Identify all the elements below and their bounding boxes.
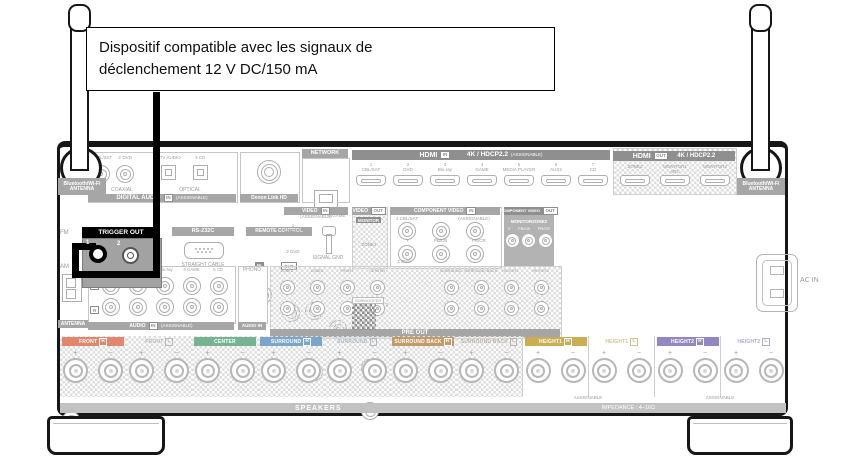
minus-sign: − [561, 350, 586, 358]
audio-jack-r [183, 298, 201, 316]
post-plus: + [592, 350, 617, 383]
speaker-channel-chip: L [762, 338, 769, 346]
coaxial-jack [116, 165, 134, 183]
speaker-name: FRONT [145, 339, 163, 345]
speaker-channel-chip: L [370, 338, 377, 346]
pre-out-jack [280, 280, 295, 295]
plus-sign: + [592, 350, 617, 358]
hdmi-port-icon [467, 175, 497, 186]
post-plus: + [195, 350, 220, 383]
subwoofer-num2: 2 [383, 303, 391, 308]
speaker-label: CENTER [194, 337, 256, 346]
binding-post [724, 358, 749, 383]
speaker-posts: + − [126, 350, 192, 397]
pre-out-label: ZONE3 [311, 268, 324, 274]
trigger-out-jack1 [89, 245, 107, 263]
component-out-channel-label: Y [508, 226, 511, 231]
post-minus: − [362, 350, 387, 383]
pre-out-label: HEIGHT2 [533, 268, 549, 274]
hdmi-port-icon [393, 175, 423, 186]
speaker-posts: + − [60, 350, 126, 397]
fm-label: FM [60, 230, 72, 237]
hdmi-out-spec: 4K / HDCP2.2 [677, 153, 715, 159]
hdmi-in-port: 2DVD [390, 162, 426, 186]
hdmi-in-port: 1CBL/SAT [353, 162, 389, 186]
speaker-label: HEIGHT1 L [591, 337, 653, 346]
hdmi-in-ports: 1CBL/SAT 2DVD 3Blu-ray 4GAME [353, 162, 611, 186]
component-jack [432, 245, 450, 263]
denon-link-bar: Denon Link HD [240, 194, 298, 202]
hdmi-port-icon [541, 175, 571, 186]
pre-out-jack [504, 301, 519, 316]
plus-sign: + [526, 350, 551, 358]
digital-audio-note: (ASSIGNABLE) [176, 196, 208, 201]
right-foot [687, 416, 793, 455]
plus-sign: + [63, 350, 88, 358]
binding-post [327, 358, 352, 383]
hdmi-port-label: 1CBL/SAT [362, 162, 380, 175]
speaker-posts: + − [655, 350, 720, 397]
pre-out-jack [504, 280, 519, 295]
speaker-posts: + − [192, 350, 258, 397]
post-minus: − [561, 350, 586, 383]
speaker-name: SURROUND [271, 339, 302, 345]
plus-sign: + [459, 350, 484, 358]
component-channel-label: PB/CB [434, 239, 448, 244]
hdmi-port-icon [578, 175, 608, 186]
hdmi-out-port-label: ZONE2 [627, 164, 642, 175]
post-plus: + [393, 350, 418, 383]
video-out-badge: OUT [371, 207, 386, 214]
pre-out-jack [534, 280, 549, 295]
post-plus: + [327, 350, 352, 383]
bt-antenna-line2: ANTENNA [70, 187, 94, 192]
binding-post [592, 358, 617, 383]
optical-label: 2 CD [195, 155, 205, 165]
pre-out-column: SURROUND BACK [466, 268, 496, 316]
minus-sign: − [362, 350, 387, 358]
assignable-label-height2: ASSIGNABLE [692, 396, 748, 401]
component-in-bar: COMPONENT VIDEO IN [390, 207, 500, 215]
hdmi-port-icon [660, 175, 690, 186]
speaker-posts: + − [390, 350, 456, 397]
audio-input: 5 CD [205, 267, 232, 316]
denon-link-jack [257, 160, 281, 184]
bt-antenna-label-left: Bluetooth/Wi-Fi ANTENNA [58, 178, 106, 195]
post-minus: − [98, 350, 123, 383]
speaker-label: HEIGHT2 R [657, 337, 719, 346]
phono-audio-in-bar: AUDIO IN [238, 322, 266, 330]
left-foot [47, 416, 165, 455]
post-minus: − [693, 350, 718, 383]
component-out-channel-label: PR/CR [538, 226, 550, 231]
hdmi-out-port: MONITOR1ARC [655, 163, 695, 187]
post-minus: − [164, 350, 189, 383]
audio-input: 4 GAME [178, 267, 205, 316]
right-antenna-tip [749, 4, 772, 32]
pre-out-column: HEIGHT2 [526, 268, 556, 316]
component-out-cols: YPB/CBPR/CR [504, 226, 554, 231]
post-minus: − [759, 350, 784, 383]
binding-post [296, 358, 321, 383]
audio-jack-r [210, 298, 228, 316]
hdmi-port-label: 5MEDIA PLAYER [503, 162, 536, 175]
hdmi-out-port: ZONE2 [615, 163, 655, 187]
speaker-label: HEIGHT1 R [525, 337, 587, 346]
hdmi-in-badge: IN [440, 151, 450, 158]
pre-out-column: HEIGHT1 [496, 268, 526, 316]
speaker-name: FRONT [79, 339, 97, 345]
speaker-label: SURROUND BACK L [458, 337, 520, 346]
audio-jack-r [156, 298, 174, 316]
binding-post [759, 358, 784, 383]
minus-sign: − [164, 350, 189, 358]
audio-in-bar: AUDIO IN (ASSIGNABLE) [88, 322, 234, 330]
hdmi-in-spec: 4K / HDCP2.2 [467, 152, 508, 159]
digital-audio-bar: DIGITAL AUDIO IN (ASSIGNABLE) [88, 194, 236, 202]
post-plus: + [129, 350, 154, 383]
hdmi-port-label: 4GAME [475, 162, 488, 175]
audio-in-bar-label: AUDIO [129, 324, 145, 329]
pre-out-label: SURROUND BACK [464, 268, 497, 274]
signal-gnd-post [326, 234, 332, 254]
speaker-label: FRONT L [128, 337, 190, 346]
post-minus: − [428, 350, 453, 383]
speaker-label: SURROUND L [326, 337, 388, 346]
right-antenna [751, 22, 770, 171]
speaker-name: SURROUND BACK [461, 339, 508, 345]
post-minus: − [296, 350, 321, 383]
network-bar: NETWORK [302, 149, 348, 158]
binding-post [494, 358, 519, 383]
speaker-name: HEIGHT1 [539, 339, 562, 345]
minus-sign: − [627, 350, 652, 358]
speaker-label: SURROUND R [260, 337, 322, 346]
minus-sign: − [230, 350, 255, 358]
video-out-monitor-label: MONITOR [356, 217, 381, 223]
post-plus: + [261, 350, 286, 383]
ac-inlet [756, 254, 798, 312]
trigger-out-jack2 [122, 247, 139, 264]
speaker-pair: FRONT R + − [60, 336, 126, 397]
hdmi-port-icon [430, 175, 460, 186]
speaker-label: SURROUND BACK R [392, 337, 454, 346]
minus-sign: − [428, 350, 453, 358]
speaker-name: SURROUND BACK [394, 339, 441, 345]
post-plus: + [63, 350, 88, 383]
speaker-channel-chip: R [303, 338, 311, 346]
video-in-jack3-label: 2 DVD [282, 250, 304, 255]
pre-out-label: SURROUND [440, 268, 462, 274]
speakers-bar: SPEAKERS IMPEDANCE : 4–16Ω [60, 403, 786, 413]
speaker-pair: SURROUND BACK L + − [456, 336, 522, 397]
speaker-pair: HEIGHT1 L + − [588, 336, 654, 397]
hdmi-out-port-label: MONITOR2 [703, 164, 727, 175]
hdmi-out-badge: OUT [654, 152, 669, 159]
pre-out-jack [280, 301, 295, 316]
speaker-pair: CENTER + − [192, 336, 258, 397]
minus-sign: − [494, 350, 519, 358]
video-out-label: VIDEO [352, 209, 368, 214]
component-out-channel-label: PB/CB [518, 226, 530, 231]
coaxial-label: 2 DVD [119, 155, 132, 165]
speaker-name: HEIGHT2 [671, 339, 694, 345]
hdmi-out-bar: HDMI OUT 4K / HDCP2.2 [613, 151, 735, 161]
speaker-name: SURROUND [337, 339, 368, 345]
minus-sign: − [98, 350, 123, 358]
post-plus: + [724, 350, 749, 383]
binding-post [526, 358, 551, 383]
speaker-terminals: FRONT R + − FRONT L [60, 336, 786, 397]
speaker-pair: SURROUND L + − [324, 336, 390, 397]
pre-out-jack [474, 301, 489, 316]
pre-out-label: CENTER [369, 268, 385, 274]
speaker-posts: + − [258, 350, 324, 397]
video-out-zone2-label: ZONE2 [356, 243, 382, 248]
pre-out-jack [444, 280, 459, 295]
audio-input-label: 5 CD [214, 267, 224, 274]
speaker-pair: HEIGHT1 R + − [522, 336, 588, 397]
speakers-bar-label: SPEAKERS [295, 405, 342, 412]
post-minus: − [494, 350, 519, 383]
video-out-bar: VIDEO OUT [352, 207, 386, 215]
optical-input: 2 CD [193, 155, 208, 180]
speaker-pair: FRONT L + − [126, 336, 192, 397]
component-jack [521, 233, 536, 248]
binding-post [658, 358, 683, 383]
speaker-pair: HEIGHT2 L + − [720, 336, 786, 397]
pre-out-jack [370, 280, 385, 295]
component-out-label: COMPONENT VIDEO [500, 209, 540, 213]
video-in-label: VIDEO [302, 209, 318, 214]
hdmi-in-port: 3Blu-ray [427, 162, 463, 186]
speaker-posts: + − [589, 350, 654, 397]
binding-post [428, 358, 453, 383]
binding-post [230, 358, 255, 383]
plus-sign: + [327, 350, 352, 358]
speaker-posts: + − [324, 350, 390, 397]
pre-out-jack [310, 301, 325, 316]
post-plus: + [658, 350, 683, 383]
ac-in-label: AC IN [800, 277, 830, 285]
hdmi-in-bar: HDMI IN 4K / HDCP2.2 (ASSIGNABLE) [352, 150, 610, 160]
bt-antenna-line2: ANTENNA [749, 187, 773, 192]
digital-audio-optical: 1 TV AUDIO 2 CD [156, 155, 208, 180]
hdmi-port-icon [620, 175, 650, 186]
component-in-badge: IN [466, 207, 476, 214]
component-jack [505, 233, 520, 248]
binding-post [459, 358, 484, 383]
pre-out-jack [534, 301, 549, 316]
hdmi-port-icon [356, 175, 386, 186]
trigger-out-header: TRIGGER OUT [82, 227, 160, 238]
pre-out-jack [444, 301, 459, 316]
audio-input-label: 4 GAME [183, 267, 199, 274]
pre-out-column: ZONE2 [272, 268, 302, 316]
speaker-channel-chip: R [696, 338, 704, 346]
component-channel-label: PR/CR [472, 239, 486, 244]
speaker-pair: HEIGHT2 R + − [654, 336, 720, 397]
am-terminal [62, 274, 82, 302]
speaker-label: HEIGHT2 L [723, 337, 785, 346]
plus-sign: + [129, 350, 154, 358]
speaker-channel-chip: R [564, 338, 572, 346]
speaker-posts: + − [523, 350, 588, 397]
hdmi-in-port: 5MEDIA PLAYER [501, 162, 537, 186]
pre-out-jack [340, 280, 355, 295]
speaker-channel-chip: R [99, 338, 107, 346]
optical-caption: OPTICAL [160, 188, 220, 194]
impedance-label: IMPEDANCE : 4–16Ω [602, 405, 656, 411]
component-in-label: COMPONENT VIDEO [414, 209, 463, 214]
digital-audio-in-badge: IN [164, 194, 174, 201]
hdmi-in-port: 4GAME [464, 162, 500, 186]
pre-out-column: SURROUND [436, 268, 466, 316]
hdmi-port-icon [700, 175, 730, 186]
plus-sign: + [393, 350, 418, 358]
plus-sign: + [724, 350, 749, 358]
speaker-name: HEIGHT1 [605, 339, 628, 345]
binding-post [261, 358, 286, 383]
subwoofer-num1: 1 [359, 303, 367, 308]
hdmi-port-label: 6AUX2 [550, 162, 562, 175]
hdmi-out-ports: ZONE2 MONITOR1ARC MONITOR2 [615, 163, 735, 187]
hdmi-out-title: HDMI [633, 153, 651, 160]
minus-sign: − [296, 350, 321, 358]
audio-jack-r [102, 298, 120, 316]
pre-out-jack [310, 280, 325, 295]
minus-sign: − [759, 350, 784, 358]
video-in-jack2-label: 3 GAME [325, 214, 349, 219]
coaxial-input: 2 DVD [116, 155, 134, 183]
phono-label: PHONO [238, 268, 266, 274]
pre-out-label: HEIGHT1 [503, 268, 519, 274]
speaker-name: CENTER [214, 339, 236, 345]
post-minus: − [627, 350, 652, 383]
optical-jack [193, 165, 208, 180]
component-in-mid-labels: YPB/CBPR/CR [394, 239, 498, 244]
binding-post [98, 358, 123, 383]
speaker-pair: SURROUND BACK R + − [390, 336, 456, 397]
speaker-posts: + − [456, 350, 522, 397]
component-jack [538, 233, 553, 248]
video-in-jack1-label: 1 CBL/SAT [282, 224, 304, 234]
hdmi-in-note: (ASSIGNABLE) [511, 153, 543, 158]
hdmi-out-port-label: MONITOR1ARC [663, 164, 687, 175]
binding-post [195, 358, 220, 383]
callout-line1: Dispositif compatible avec les signaux d… [99, 37, 542, 59]
callout-box: Dispositif compatible avec les signaux d… [86, 27, 555, 91]
pre-out-column: ZONE3 [302, 268, 332, 316]
plus-sign: + [195, 350, 220, 358]
plus-sign: + [261, 350, 286, 358]
speaker-channel-chip: L [630, 338, 637, 346]
leader-line-vertical [153, 92, 160, 278]
binding-post [63, 358, 88, 383]
audio-in-note: (ASSIGNABLE) [161, 324, 193, 329]
hdmi-port-label: 7CD [590, 162, 597, 175]
hdmi-in-port: 6AUX2 [538, 162, 574, 186]
trigger-jack2-number: 2 [117, 241, 120, 247]
antenna-bar: ANTENNA [58, 320, 88, 328]
post-minus: − [230, 350, 255, 383]
speaker-channel-chip: R [444, 338, 452, 346]
audio-jack-l [210, 277, 228, 295]
phono-section [238, 266, 268, 324]
am-label: AM [60, 264, 72, 271]
subwoofer-label: SUBWOOFER [352, 297, 384, 304]
component-out-section: COMPONENT VIDEO OUT MONITORZONE2 YPB/CBP… [504, 207, 554, 267]
speaker-posts: + − [721, 350, 786, 397]
rs232c-bar: RS-232C [172, 227, 234, 236]
post-plus: + [526, 350, 551, 383]
trigger-jack1-number: 1 [86, 240, 89, 246]
assignable-label-height1: ASSIGNABLE [560, 396, 616, 401]
hdmi-out-port: MONITOR2 [695, 163, 735, 187]
speaker-channel-chip: L [165, 338, 172, 346]
binding-post [393, 358, 418, 383]
optical-jack [161, 165, 176, 180]
rear-panel-diagram: Bluetooth/Wi-Fi ANTENNA Bluetooth/Wi-Fi … [0, 0, 846, 459]
leader-line-bottom [72, 271, 160, 278]
hdmi-port-label: 2DVD [403, 162, 413, 175]
plus-sign: + [658, 350, 683, 358]
component-out-badge: OUT [543, 207, 558, 214]
speaker-label: FRONT R [62, 337, 124, 346]
pre-out-jack [474, 280, 489, 295]
audio-jack-r [129, 298, 147, 316]
rs232c-port [184, 242, 224, 259]
callout-line2: déclenchement 12 V DC/150 mA [99, 59, 542, 81]
speaker-channel-chip: L [510, 338, 517, 346]
pre-out-label: ZONE2 [281, 268, 294, 274]
audio-jack-l [183, 277, 201, 295]
post-plus: + [459, 350, 484, 383]
binding-post [693, 358, 718, 383]
bt-antenna-label-right: Bluetooth/Wi-Fi ANTENNA [737, 178, 785, 195]
pre-out-label: FRONT [340, 268, 353, 274]
hdmi-in-port: 7CD [575, 162, 611, 186]
binding-post [561, 358, 586, 383]
hdmi-port-icon [504, 175, 534, 186]
hdmi-in-title: HDMI [419, 152, 437, 159]
speaker-pair: SURROUND R + − [258, 336, 324, 397]
binding-post [129, 358, 154, 383]
component-jack [466, 245, 484, 263]
minus-sign: − [693, 350, 718, 358]
hdmi-port-label: 3Blu-ray [438, 162, 452, 175]
speaker-name: HEIGHT2 [737, 339, 760, 345]
binding-post [627, 358, 652, 383]
audio-in-badge: IN [149, 322, 159, 329]
signal-gnd-label: SIGNAL GND [300, 256, 356, 262]
binding-post [362, 358, 387, 383]
component-out-sub: MONITORZONE2 [504, 219, 554, 224]
component-in-bottom: 2 DVD [392, 260, 416, 265]
pre-out-columns: ZONE2 ZONE3 FRONT CENTER [272, 268, 556, 316]
binding-post [164, 358, 189, 383]
component-channel-label: Y [406, 239, 409, 244]
